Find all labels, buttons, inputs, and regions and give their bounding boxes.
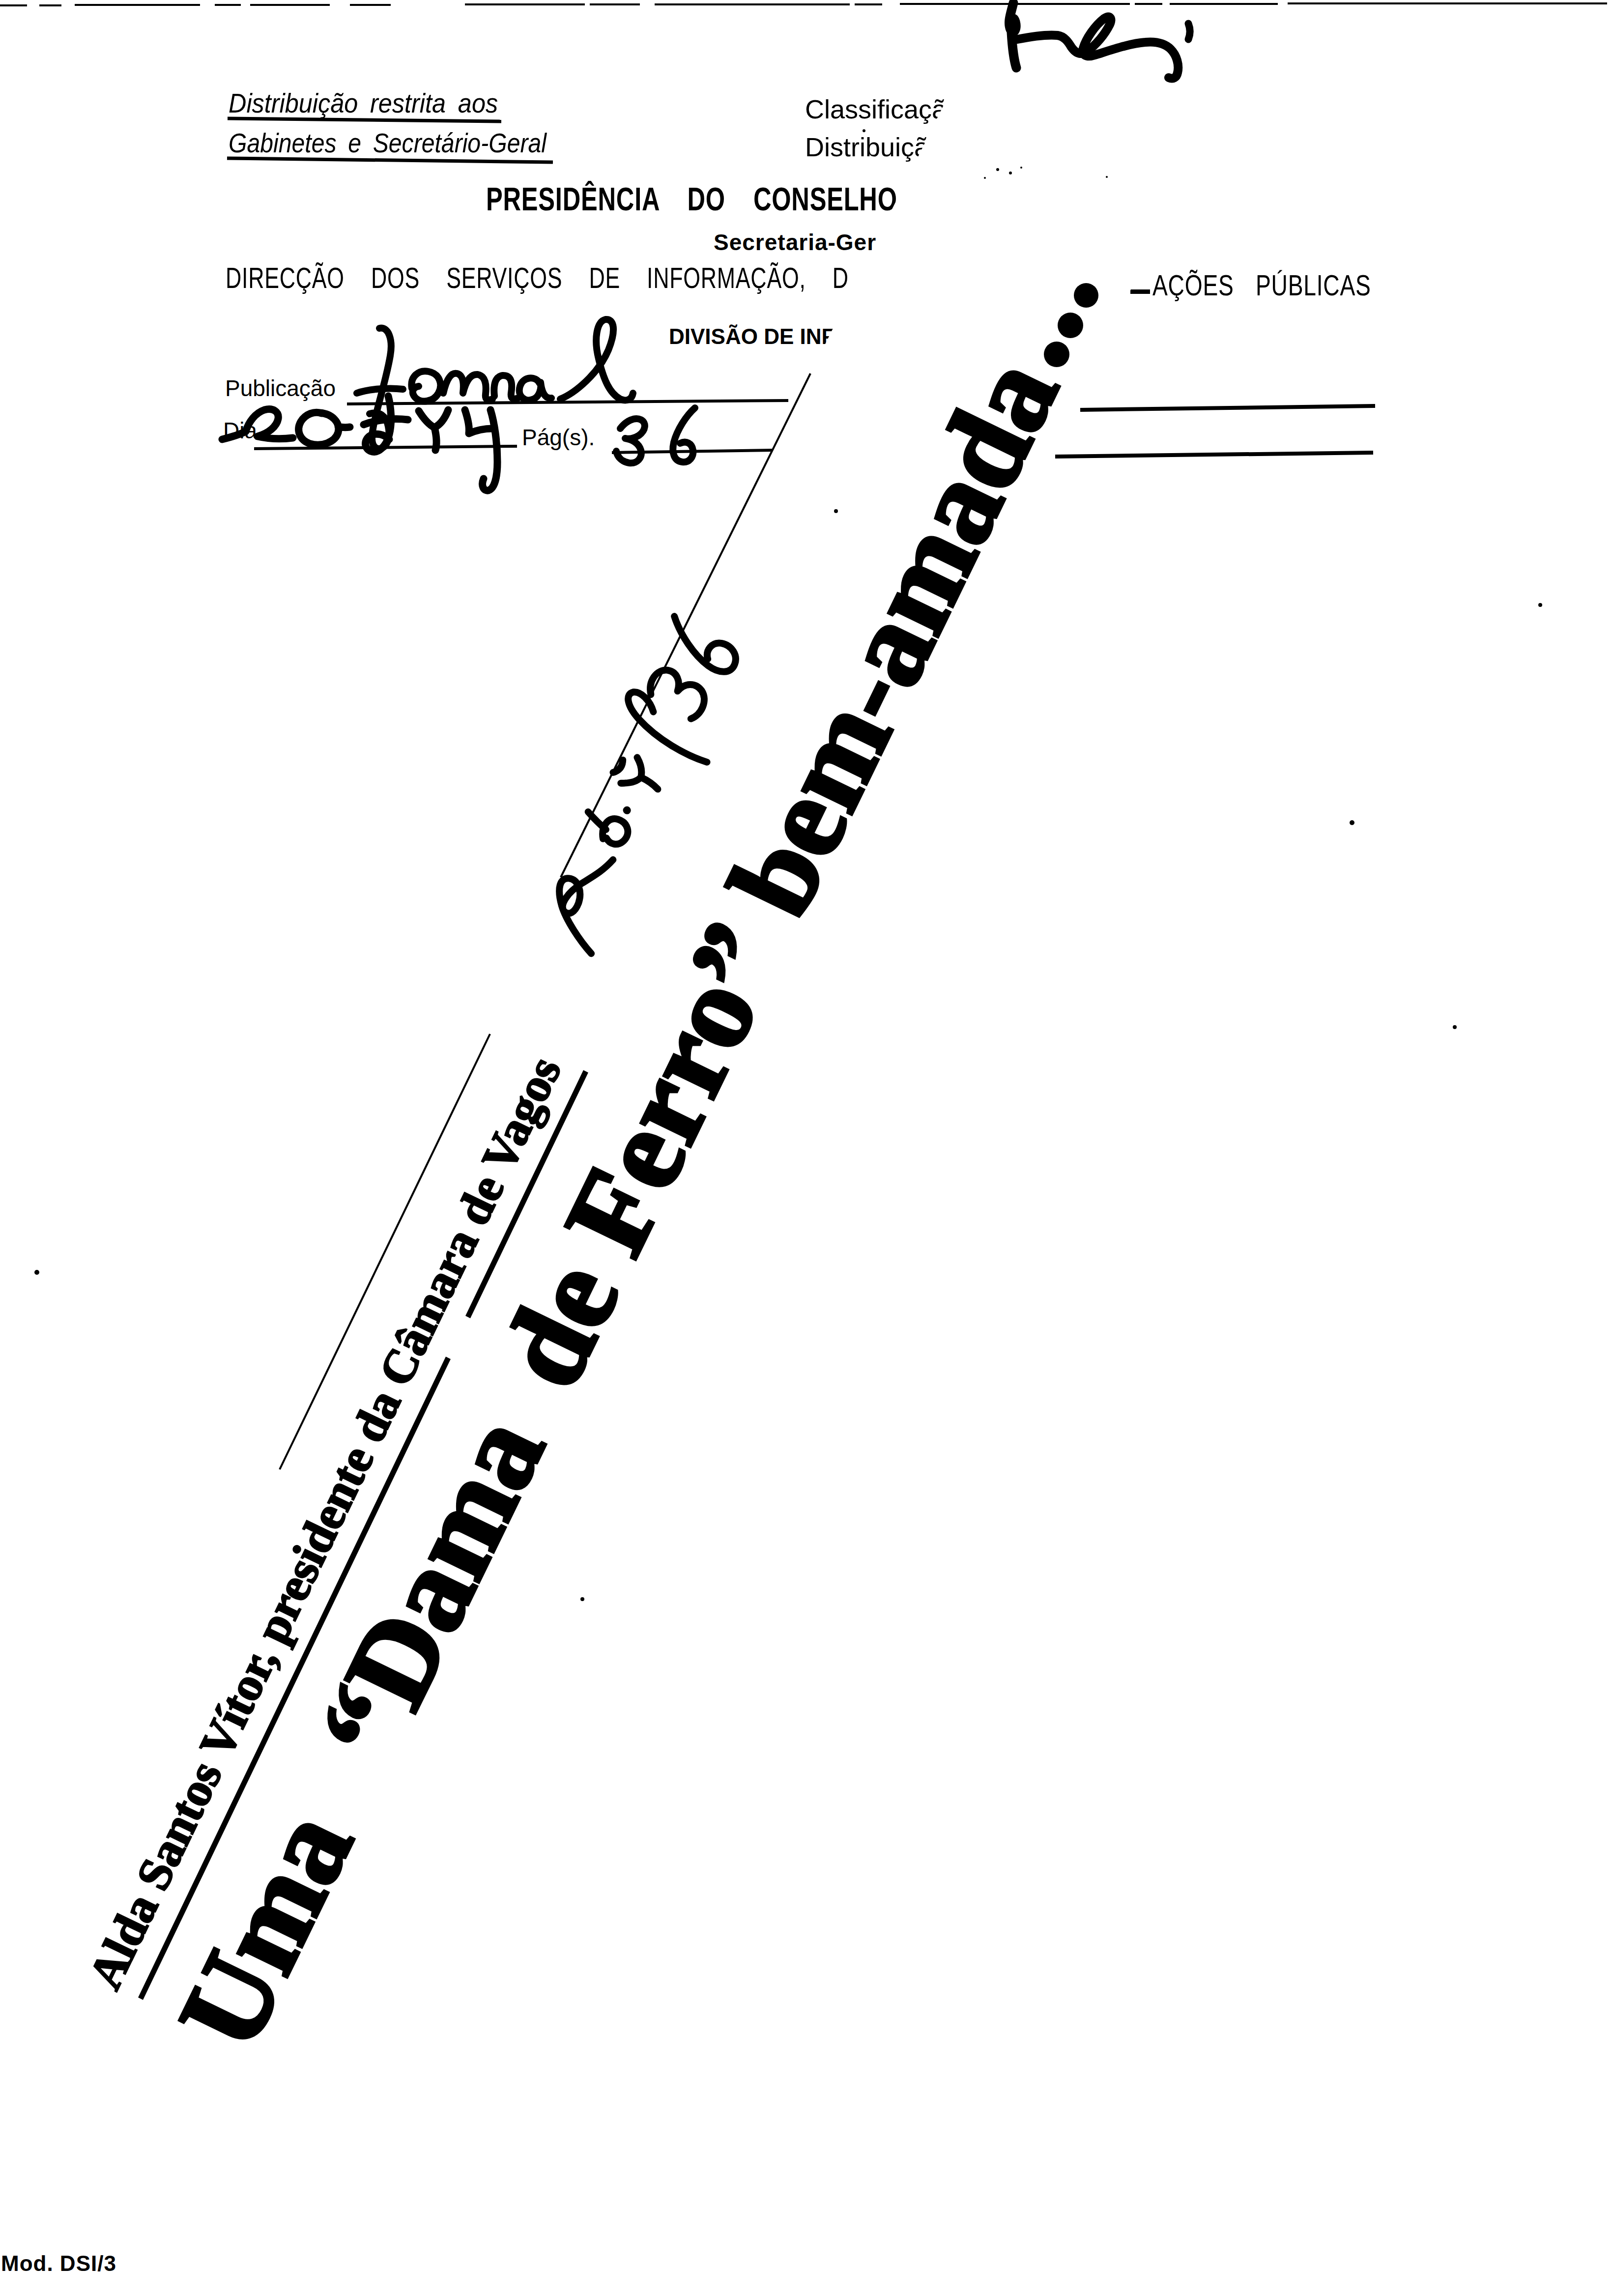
svg-text:DIRECÇÃO DOS SERVIÇOS DE INFOR: DIRECÇÃO DOS SERVIÇOS DE INFORMAÇÃO, D [226,261,849,294]
svg-text:PRESIDÊNCIA DO CONSELHO: PRESIDÊNCIA DO CONSELHO [486,180,897,217]
svg-text:Pág(s).: Pág(s). [522,425,595,450]
svg-text:AÇÕES PÚBLICAS: AÇÕES PÚBLICAS [1152,269,1371,301]
svg-text:Mod. DSI/3: Mod. DSI/3 [1,2251,116,2275]
svg-text:Secretaria-Geral: Secretaria-Geral [714,230,896,255]
svg-text:Publicação: Publicação [225,375,336,401]
svg-text:Gabinetes e Secretário-Geral: Gabinetes e Secretário-Geral [229,128,547,158]
svg-text:Distribuição restrita aos: Distribuição restrita aos [229,88,498,118]
